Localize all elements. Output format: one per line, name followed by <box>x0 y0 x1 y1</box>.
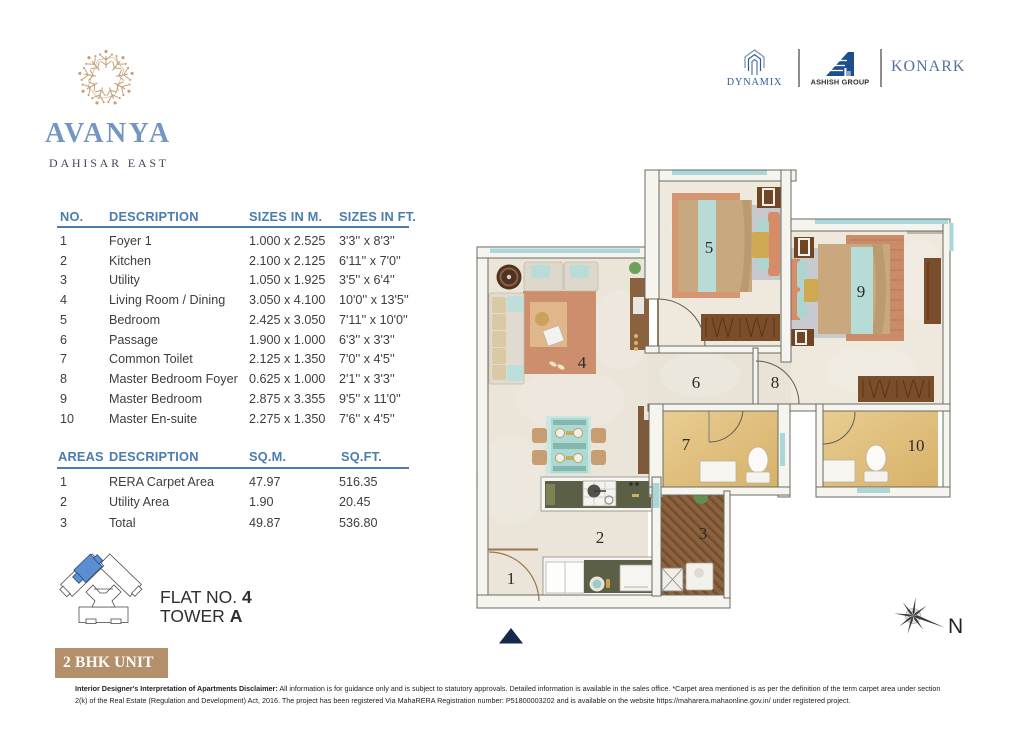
svg-text:3: 3 <box>699 524 708 543</box>
svg-text:N: N <box>948 615 963 638</box>
svg-text:7: 7 <box>682 435 691 454</box>
svg-text:2: 2 <box>596 528 605 547</box>
svg-text:9: 9 <box>857 282 866 301</box>
svg-text:10: 10 <box>908 436 925 455</box>
svg-text:1: 1 <box>507 569 516 588</box>
svg-text:8: 8 <box>771 373 780 392</box>
svg-text:DYNAMIX: DYNAMIX <box>727 77 783 88</box>
svg-text:6: 6 <box>692 373 701 392</box>
svg-text:ASHISH GROUP: ASHISH GROUP <box>811 78 870 87</box>
svg-text:5: 5 <box>705 238 714 257</box>
svg-text:4: 4 <box>578 353 587 372</box>
